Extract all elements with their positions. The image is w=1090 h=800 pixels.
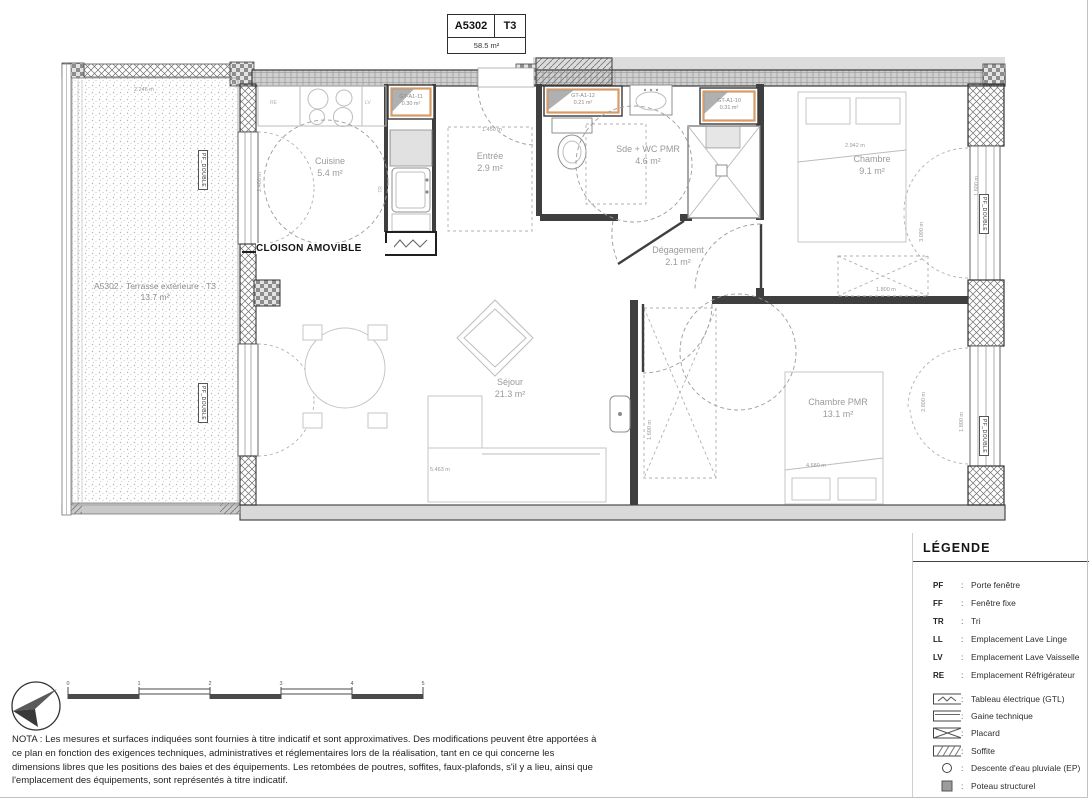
legend-abbr-value: Emplacement Réfrigérateur (971, 670, 1089, 680)
gt-id: GT-A1-12 (545, 93, 621, 100)
legend-row-lv: LV : Emplacement Lave Vaisselle (933, 648, 1089, 666)
legend-separator: : (961, 580, 971, 590)
room-name: Sde + WC PMR (598, 144, 698, 156)
title-block-row: A5302 T3 (448, 15, 525, 37)
legend-row-descente-eau: : Descente d'eau pluviale (EP) (933, 760, 1089, 777)
room-area: 2.1 m² (628, 257, 728, 269)
dimension-sejour-width: 5.463 m (430, 467, 450, 473)
title-block: A5302 T3 58.5 m² (447, 14, 526, 54)
legend-separator: : (961, 616, 971, 626)
room-label-degagement: Dégagement 2.1 m² (628, 245, 728, 268)
scale-tick: 4 (350, 681, 353, 687)
gt-id: GT-A1-11 (388, 94, 434, 101)
legend-row-ll: LL : Emplacement Lave Linge (933, 630, 1089, 648)
window-tag-pf-double-chambre-pmr: PF_DOUBLE (979, 416, 989, 456)
legend-abbr-key: LL (933, 635, 961, 644)
gt-area: 0.30 m² (388, 101, 434, 108)
dimension-entree-width: 1.450 m (482, 127, 502, 133)
gt-box-label-gt12: GT-A1-12 0.21 m² (545, 93, 621, 107)
legend-panel: LÉGENDE PF : Porte fenêtre FF : Fenêtre … (912, 533, 1089, 797)
window-tag-pf-double-terrasse-haut: PF_DOUBLE (198, 150, 208, 190)
legend-row-poteau: : Poteau structurel (933, 777, 1089, 794)
unit-type: T3 (495, 15, 525, 37)
legend-abbr-value: Emplacement Lave Linge (971, 634, 1089, 644)
legend-symbol-value: Tableau électrique (GTL) (971, 694, 1089, 704)
room-area: 4.6 m² (598, 156, 698, 168)
unit-area: 58.5 m² (448, 37, 525, 53)
placard-icon (933, 727, 961, 739)
legend-abbr-key: TR (933, 617, 961, 626)
window-tag-pf-double-terrasse-bas: PF_DOUBLE (198, 383, 208, 423)
legend-row-tableau-electrique: : Tableau électrique (GTL) (933, 690, 1089, 707)
gaine-technique-icon (933, 710, 961, 722)
dimension-pmr-width: 4.680 m (806, 463, 826, 469)
room-area: 2.9 m² (450, 163, 530, 175)
legend-abbr-key: LV (933, 653, 961, 662)
legend-separator: : (961, 652, 971, 662)
unit-number: A5302 (448, 15, 495, 37)
north-arrow-icon (8, 676, 64, 732)
legend-separator: : (961, 746, 971, 756)
gt-area: 0.21 m² (545, 100, 621, 107)
room-name: A5302 - Terrasse extérieure - T3 (72, 281, 238, 292)
legend-separator: : (961, 781, 971, 791)
legend-row-soffite: : Soffite (933, 742, 1089, 759)
legend-symbol-value: Placard (971, 728, 1089, 738)
scale-tick: 2 (208, 681, 211, 687)
page-border-right (1087, 0, 1088, 798)
room-name: Chambre PMR (788, 397, 888, 409)
room-label-cuisine: Cuisine 5.4 m² (280, 156, 380, 179)
room-area: 9.1 m² (822, 166, 922, 178)
legend-separator: : (961, 598, 971, 608)
room-label-chambre: Chambre 9.1 m² (822, 154, 922, 177)
room-name: Dégagement (628, 245, 728, 257)
room-label-terrasse: A5302 - Terrasse extérieure - T3 13.7 m² (72, 281, 238, 303)
legend-abbr-value: Tri (971, 616, 1089, 626)
legend-abbr-key: PF (933, 581, 961, 590)
legend-abbr-value: Emplacement Lave Vaisselle (971, 652, 1089, 662)
dimension-chambre-width: 2.942 m (845, 143, 865, 149)
dimension-terrasse-width: 2.246 m (134, 87, 154, 93)
room-name: Chambre (822, 154, 922, 166)
floor-plan-page: A5302 T3 58.5 m² A5302 - Terrasse extéri… (0, 0, 1090, 800)
legend-abbr-value: Fenêtre fixe (971, 598, 1089, 608)
legend-symbol-value: Poteau structurel (971, 781, 1089, 791)
room-name: Séjour (460, 377, 560, 389)
dimension-pmr-height: 2.800 m (921, 392, 927, 412)
legend-abbr-key: FF (933, 599, 961, 608)
legend-separator: : (961, 694, 971, 704)
gt-box-label-gt11: GT-A1-11 0.30 m² (388, 94, 434, 108)
dimension-fenetre-pmr: 1.800 m (959, 412, 965, 432)
room-label-sde: Sde + WC PMR 4.6 m² (598, 144, 698, 167)
tableau-electrique-icon (933, 693, 961, 705)
legend-row-gaine-technique: : Gaine technique (933, 707, 1089, 724)
cloison-amovible-label: CLOISON AMOVIBLE (256, 243, 394, 254)
descente-eau-icon (933, 762, 961, 774)
nota-text: NOTA : Les mesures et surfaces indiquées… (12, 733, 600, 788)
room-area: 21.3 m² (460, 389, 560, 401)
dimension-placard-pmr: 1.600 m (647, 420, 653, 440)
room-name: Cuisine (280, 156, 380, 168)
legend-list: PF : Porte fenêtre FF : Fenêtre fixe TR … (913, 562, 1089, 800)
legend-row-re: RE : Emplacement Réfrigérateur (933, 666, 1089, 684)
window-tag-pf-double-chambre: PF_DOUBLE (979, 194, 989, 234)
dimension-fenetre-chambre: 1.600 m (974, 176, 980, 196)
legend-separator: : (961, 670, 971, 680)
legend-symbol-value: Descente d'eau pluviale (EP) (971, 763, 1089, 773)
room-area: 13.7 m² (72, 292, 238, 303)
legend-separator: : (961, 711, 971, 721)
legend-title: LÉGENDE (913, 533, 1089, 562)
poteau-structurel-icon (933, 780, 961, 792)
room-area: 13.1 m² (788, 409, 888, 421)
soffite-icon (933, 745, 961, 757)
gt-area: 0.31 m² (701, 105, 757, 112)
legend-abbr-key: RE (933, 671, 961, 680)
legend-symbol-value: Soffite (971, 746, 1089, 756)
room-label-sejour: Séjour 21.3 m² (460, 377, 560, 400)
legend-row-pf: PF : Porte fenêtre (933, 576, 1089, 594)
dishwasher-spot-label: LV (365, 100, 371, 106)
room-name: Entrée (450, 151, 530, 163)
legend-row-placard: : Placard (933, 725, 1089, 742)
legend-row-ff: FF : Fenêtre fixe (933, 594, 1089, 612)
legend-separator: : (961, 634, 971, 644)
scale-bar: 0 1 2 3 4 5 (66, 680, 434, 706)
legend-abbr-value: Porte fenêtre (971, 580, 1089, 590)
legend-separator: : (961, 728, 971, 738)
gt-id: GT-A1-10 (701, 98, 757, 105)
refrigerator-spot-label: RE (270, 100, 277, 106)
dimension-cuisine-height: 2.400 m (257, 172, 263, 192)
dimension-chambre-height: 3.090 m (919, 222, 925, 242)
scale-tick: 5 (421, 681, 424, 687)
legend-symbol-value: Gaine technique (971, 711, 1089, 721)
legend-row-tr: TR : Tri (933, 612, 1089, 630)
scale-tick: 0 (66, 681, 69, 687)
legend-separator: : (961, 763, 971, 773)
tri-spot-label: TR (378, 186, 384, 193)
room-label-entree: Entrée 2.9 m² (450, 151, 530, 174)
page-border-bottom (0, 797, 1088, 798)
scale-tick: 1 (137, 681, 140, 687)
scale-tick: 3 (279, 681, 282, 687)
room-label-chambre-pmr: Chambre PMR 13.1 m² (788, 397, 888, 420)
gt-box-label-gt10: GT-A1-10 0.31 m² (701, 98, 757, 112)
room-area: 5.4 m² (280, 168, 380, 180)
dimension-placard-chambre: 1.800 m (876, 287, 896, 293)
